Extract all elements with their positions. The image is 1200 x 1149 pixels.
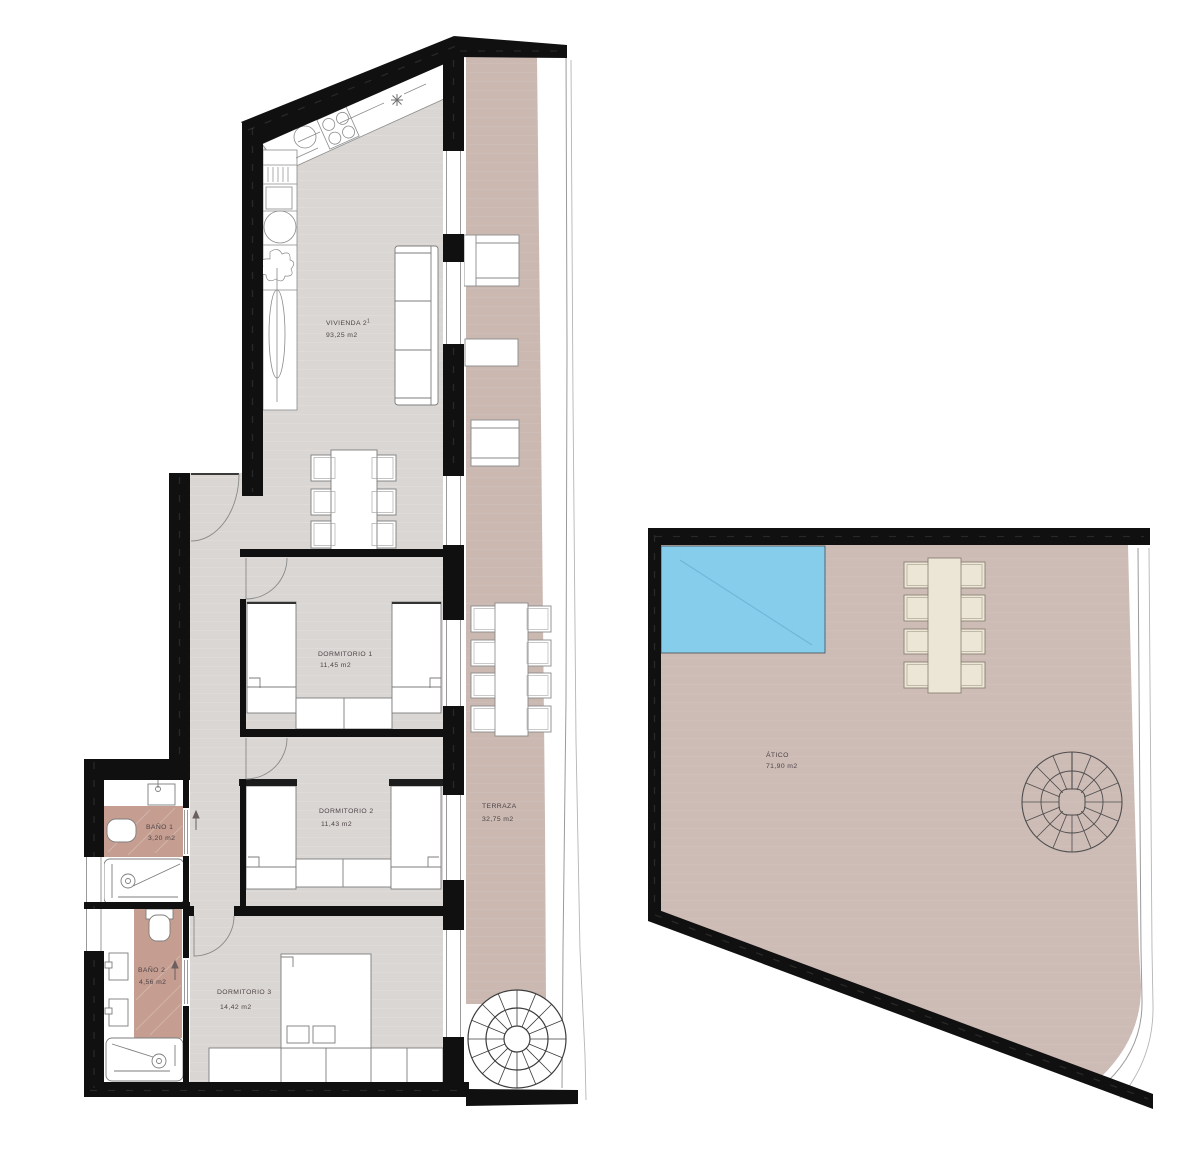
- svg-text:93,25 m2: 93,25 m2: [326, 332, 358, 339]
- svg-text:71,90 m2: 71,90 m2: [766, 763, 798, 770]
- svg-text:4,56 m2: 4,56 m2: [139, 979, 166, 986]
- svg-text:11,43 m2: 11,43 m2: [321, 821, 352, 828]
- svg-text:32,75 m2: 32,75 m2: [482, 816, 514, 823]
- svg-text:DORMITORIO 2: DORMITORIO 2: [319, 808, 374, 815]
- svg-text:ÁTICO: ÁTICO: [766, 750, 789, 759]
- svg-text:TERRAZA: TERRAZA: [482, 803, 517, 810]
- svg-text:DORMITORIO 3: DORMITORIO 3: [217, 989, 272, 996]
- svg-text:DORMITORIO 1: DORMITORIO 1: [318, 651, 373, 658]
- svg-text:14,42 m2: 14,42 m2: [220, 1004, 252, 1011]
- svg-text:BAÑO 2: BAÑO 2: [138, 965, 165, 974]
- svg-text:11,45 m2: 11,45 m2: [320, 662, 351, 669]
- svg-text:BAÑO 1: BAÑO 1: [146, 822, 173, 831]
- svg-text:3,20 m2: 3,20 m2: [148, 835, 175, 842]
- svg-text:VIVIENDA 21: VIVIENDA 21: [326, 319, 370, 328]
